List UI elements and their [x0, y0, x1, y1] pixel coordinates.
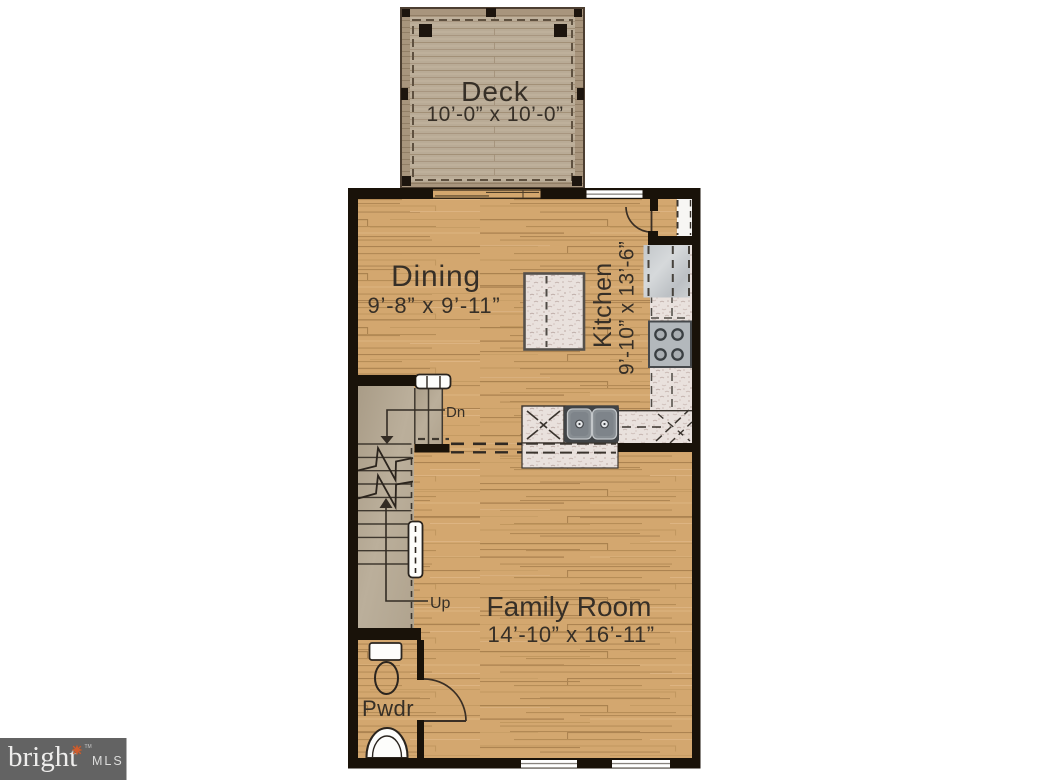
svg-text:bright: bright: [8, 741, 77, 773]
svg-text:Dining: Dining: [391, 260, 481, 293]
svg-text:9’-8” x 9’-11”: 9’-8” x 9’-11”: [367, 293, 500, 318]
svg-text:Kitchen: Kitchen: [589, 263, 617, 349]
svg-text:Dn: Dn: [446, 404, 465, 421]
svg-text:TM: TM: [85, 744, 92, 750]
svg-text:10’-0” x 10’-0”: 10’-0” x 10’-0”: [426, 103, 563, 126]
svg-text:MLS: MLS: [92, 754, 124, 768]
svg-text:Family Room: Family Room: [487, 591, 652, 622]
svg-text:14’-10” x 16’-11”: 14’-10” x 16’-11”: [487, 622, 654, 647]
svg-text:Up: Up: [430, 595, 451, 612]
svg-text:Pwdr: Pwdr: [362, 696, 414, 721]
svg-text:9’-10” x 13’-6”: 9’-10” x 13’-6”: [616, 241, 639, 375]
